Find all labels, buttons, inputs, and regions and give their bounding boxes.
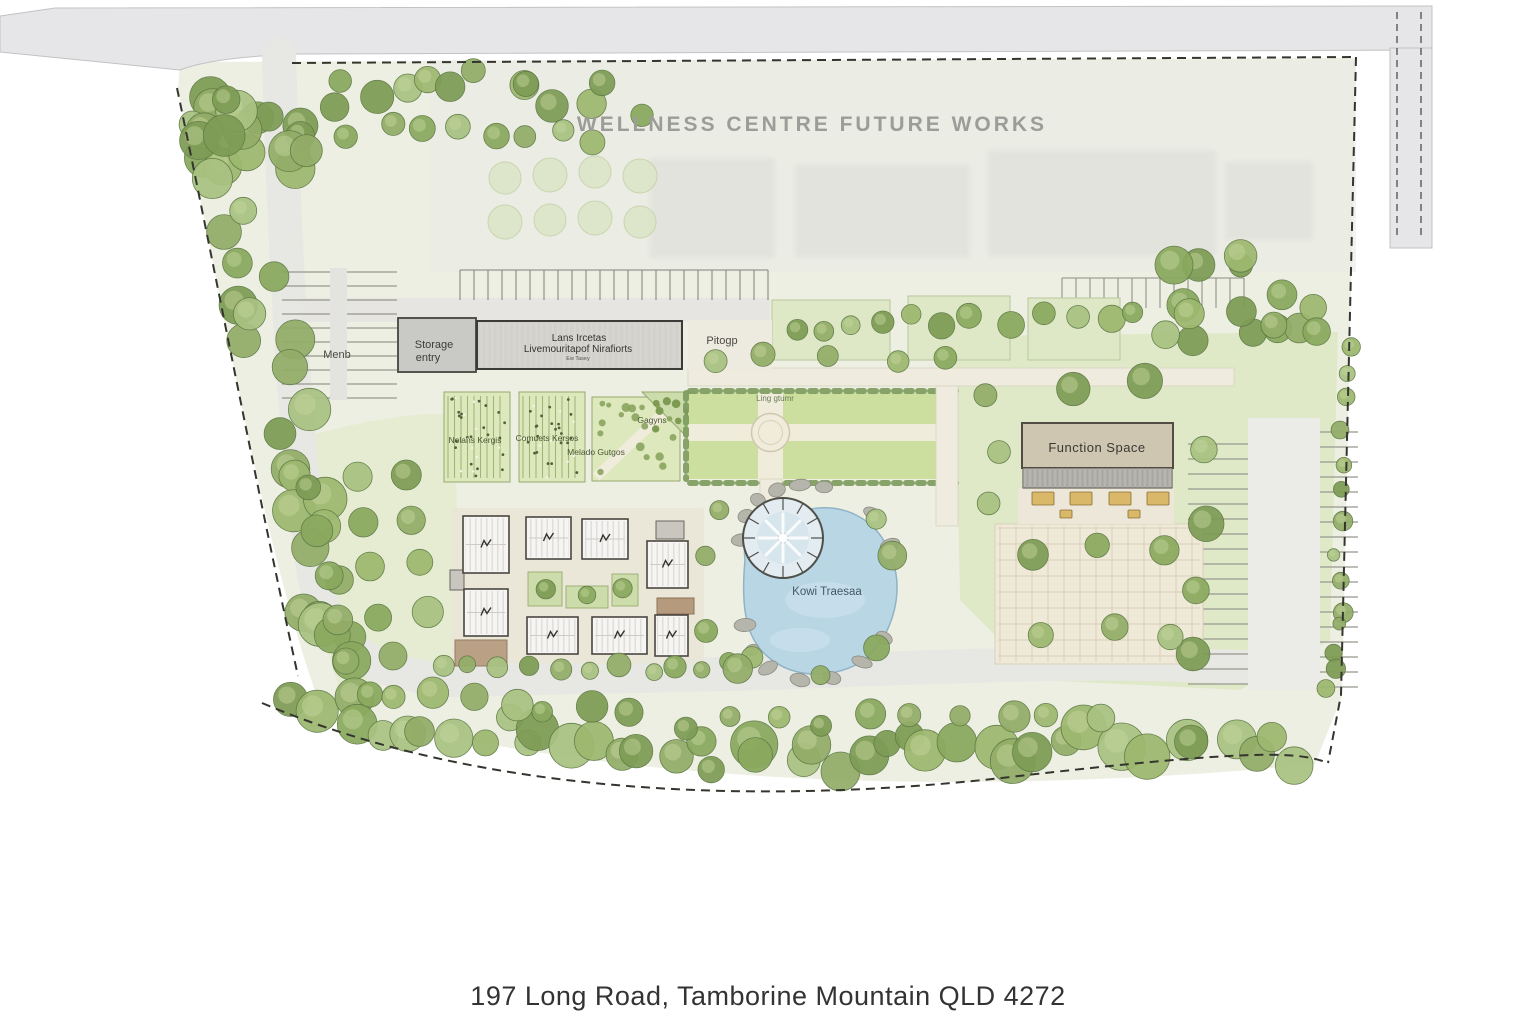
pond-label: Kowi Traesaa (792, 586, 862, 598)
function-space-label: Function Space (1048, 440, 1145, 455)
main-building-label-2: Livemouritapof Nirafiorts (524, 344, 632, 355)
lawn-note-label: Ling gtumr (756, 394, 794, 403)
plot-d-label: Gagyns (637, 415, 666, 425)
main-building-label-1: Lans Ircetas (552, 333, 606, 344)
address-text: 197 Long Road, Tamborine Mountain QLD 42… (470, 981, 1065, 1011)
pond-pavilion (743, 498, 823, 578)
formal-lawn (686, 391, 958, 483)
main-building-label-3: Ew Tasey (566, 356, 590, 362)
storage-entry-label-1: Storage (415, 339, 454, 351)
front-drive (300, 298, 770, 322)
storage-entry-label-2: entry (416, 352, 441, 364)
address-caption: 197 Long Road, Tamborine Mountain QLD 42… (0, 981, 1536, 1012)
site-plan-page: WELLNESS CENTRE FUTURE WORKS Storage ent… (0, 0, 1536, 1024)
west-parking-label: Menb (323, 349, 351, 361)
future-works-title: WELLNESS CENTRE FUTURE WORKS (577, 113, 1047, 136)
lawn-circle-node (752, 414, 790, 452)
drop-off-label: Pitogp (706, 335, 737, 347)
site-plan-drawing: WELLNESS CENTRE FUTURE WORKS Storage ent… (0, 0, 1536, 1024)
plot-a-label: Nolans Kergis (449, 435, 502, 445)
plot-b-label: Comuets Kersos (516, 433, 579, 443)
east-parking-aisle (1248, 418, 1320, 690)
west-parking-aisle (330, 268, 347, 400)
plot-c-label: Melado Gutgos (567, 447, 625, 457)
